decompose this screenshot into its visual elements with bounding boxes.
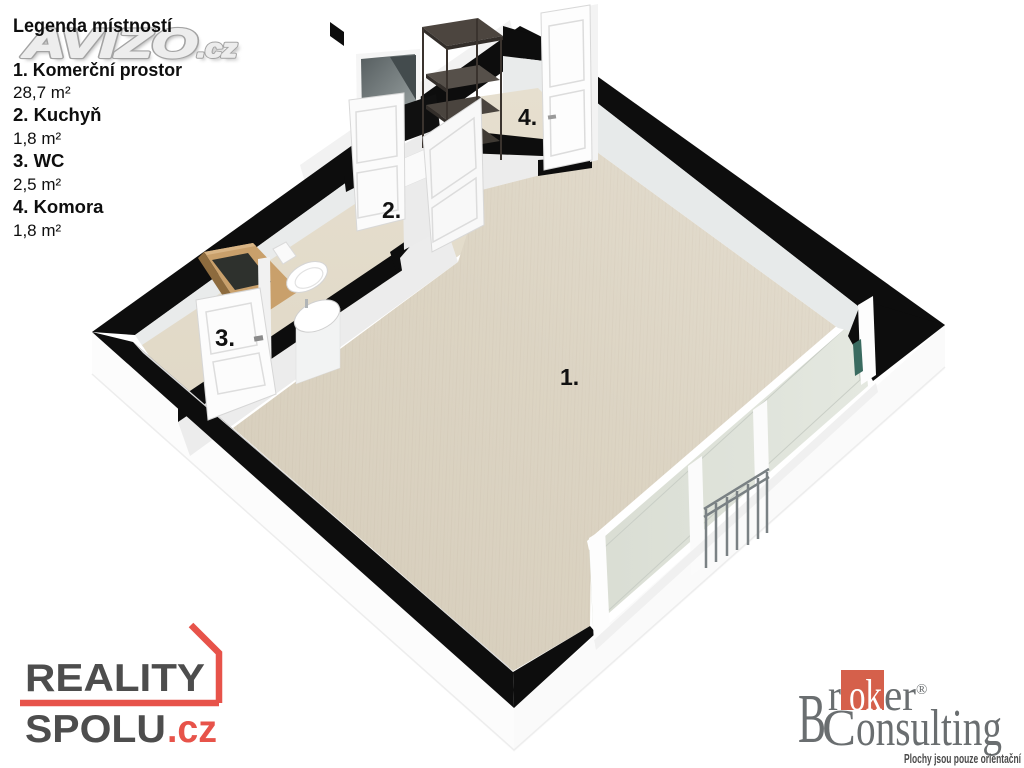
svg-text:1. Komerční prostor: 1. Komerční prostor xyxy=(13,59,182,80)
svg-text:REALITY: REALITY xyxy=(25,657,205,700)
svg-text:3. WC: 3. WC xyxy=(13,150,64,171)
svg-text:onsulting: onsulting xyxy=(856,700,1002,757)
svg-text:Legenda místností: Legenda místností xyxy=(13,16,173,37)
svg-text:.cz: .cz xyxy=(167,708,217,751)
svg-text:4. Komora: 4. Komora xyxy=(13,196,104,217)
svg-text:C: C xyxy=(822,700,856,757)
svg-text:®: ® xyxy=(916,682,927,698)
svg-text:28,7 m²: 28,7 m² xyxy=(13,83,71,102)
svg-text:2,5 m²: 2,5 m² xyxy=(13,175,62,194)
svg-text:2.: 2. xyxy=(382,197,401,223)
svg-text:SPOLU: SPOLU xyxy=(25,708,166,751)
svg-text:1,8 m²: 1,8 m² xyxy=(13,221,62,240)
svg-text:Plochy jsou pouze orientační: Plochy jsou pouze orientační xyxy=(904,751,1021,766)
svg-text:4.: 4. xyxy=(518,104,537,130)
svg-text:.cz: .cz xyxy=(197,33,237,63)
svg-text:1,8 m²: 1,8 m² xyxy=(13,129,62,148)
svg-text:1.: 1. xyxy=(560,364,579,390)
svg-text:3.: 3. xyxy=(215,325,235,352)
svg-text:2. Kuchyň: 2. Kuchyň xyxy=(13,104,101,125)
